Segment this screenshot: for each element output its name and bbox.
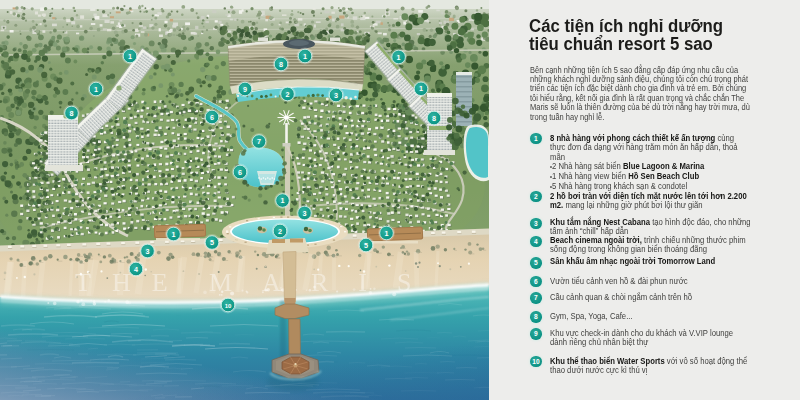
svg-text:1: 1 — [128, 52, 132, 61]
svg-text:9: 9 — [243, 85, 247, 94]
svg-text:3: 3 — [334, 91, 338, 100]
svg-text:1: 1 — [397, 53, 401, 62]
svg-text:8: 8 — [279, 60, 283, 69]
svg-text:2: 2 — [278, 227, 282, 236]
svg-text:1: 1 — [172, 230, 176, 239]
svg-text:7: 7 — [257, 137, 261, 146]
svg-text:2: 2 — [286, 90, 290, 99]
svg-text:5: 5 — [210, 238, 214, 247]
svg-text:10: 10 — [225, 303, 232, 309]
svg-text:3: 3 — [146, 247, 150, 256]
svg-text:1: 1 — [419, 84, 423, 93]
svg-text:1: 1 — [303, 52, 307, 61]
svg-text:3: 3 — [303, 209, 307, 218]
svg-text:1: 1 — [385, 229, 389, 238]
svg-text:4: 4 — [134, 265, 138, 274]
svg-text:1: 1 — [94, 85, 98, 94]
svg-text:8: 8 — [70, 109, 74, 118]
svg-text:6: 6 — [210, 113, 214, 122]
svg-text:5: 5 — [364, 241, 368, 250]
svg-text:1: 1 — [281, 196, 285, 205]
svg-text:6: 6 — [238, 168, 242, 177]
svg-text:8: 8 — [432, 114, 436, 123]
svg-text:MARIS: MARIS — [209, 268, 441, 297]
